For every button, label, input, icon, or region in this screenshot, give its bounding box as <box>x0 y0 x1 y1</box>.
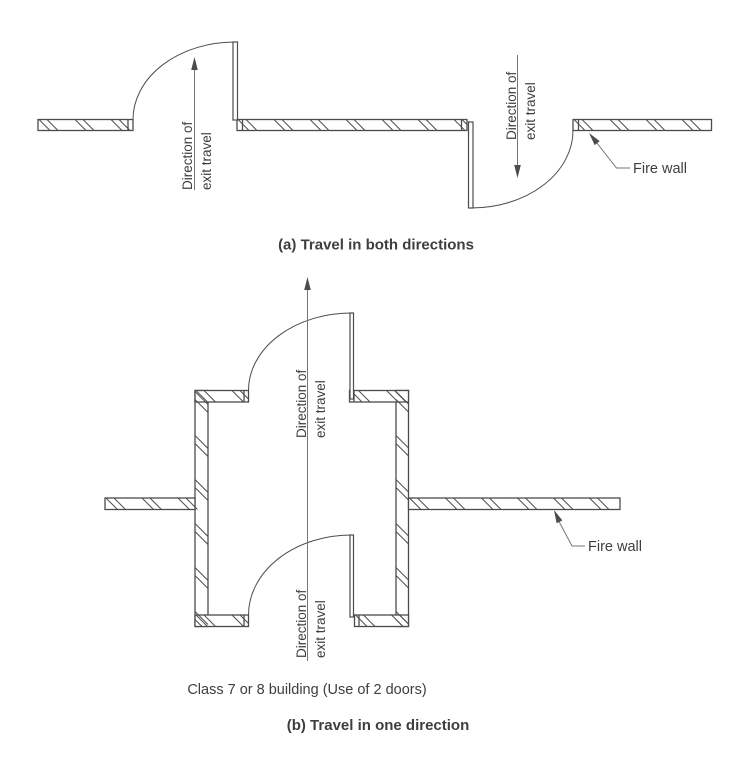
door-swing-arc <box>133 42 235 120</box>
fire-wall-stub-right <box>409 498 621 510</box>
exit-travel-arrowhead-up <box>191 57 198 70</box>
direction-label-line1: Direction of <box>504 71 519 140</box>
exit-travel-arrowhead-up <box>304 277 311 290</box>
direction-label-line2: exit travel <box>199 132 214 190</box>
panel-b-caption: (b) Travel in one direction <box>287 717 470 734</box>
fire-wall-stub-left <box>105 498 195 510</box>
panel-b-note: Class 7 or 8 building (Use of 2 doors) <box>187 682 426 698</box>
figure-page: Direction of exit travel Direction of ex… <box>0 0 750 769</box>
panel-a-caption: (a) Travel in both directions <box>278 237 474 254</box>
direction-label-line2: exit travel <box>313 380 328 438</box>
door-leaf <box>469 122 474 208</box>
vestibule-wall-right <box>396 391 409 627</box>
direction-label-line2: exit travel <box>523 82 538 140</box>
direction-label-line1: Direction of <box>294 589 309 658</box>
fire-wall-leader-line <box>597 143 631 169</box>
fire-wall-leader-arrowhead <box>589 133 600 145</box>
door-swing-arc <box>471 131 573 209</box>
panel-b: Direction of exit travel Direction of ex… <box>105 277 642 734</box>
vestibule-wall-top-left <box>195 391 249 403</box>
direction-label-line1: Direction of <box>180 121 195 190</box>
door-leaf <box>233 42 238 120</box>
direction-label-line1: Direction of <box>294 369 309 438</box>
fire-wall-leader-line <box>559 522 585 547</box>
fire-wall-label: Fire wall <box>588 539 642 555</box>
panel-a: Direction of exit travel Direction of ex… <box>38 42 712 254</box>
vestibule-wall-bottom-left <box>195 615 249 627</box>
fire-wall-label: Fire wall <box>633 161 687 177</box>
fire-wall-doors-figure: Direction of exit travel Direction of ex… <box>0 0 750 769</box>
door-leaf <box>350 535 354 617</box>
exit-travel-arrowhead-down <box>514 165 521 178</box>
direction-label-line2: exit travel <box>313 600 328 658</box>
vestibule-wall-bottom-right <box>355 615 409 627</box>
fire-wall-leader-arrowhead <box>554 510 562 523</box>
door-leaf <box>350 313 354 399</box>
